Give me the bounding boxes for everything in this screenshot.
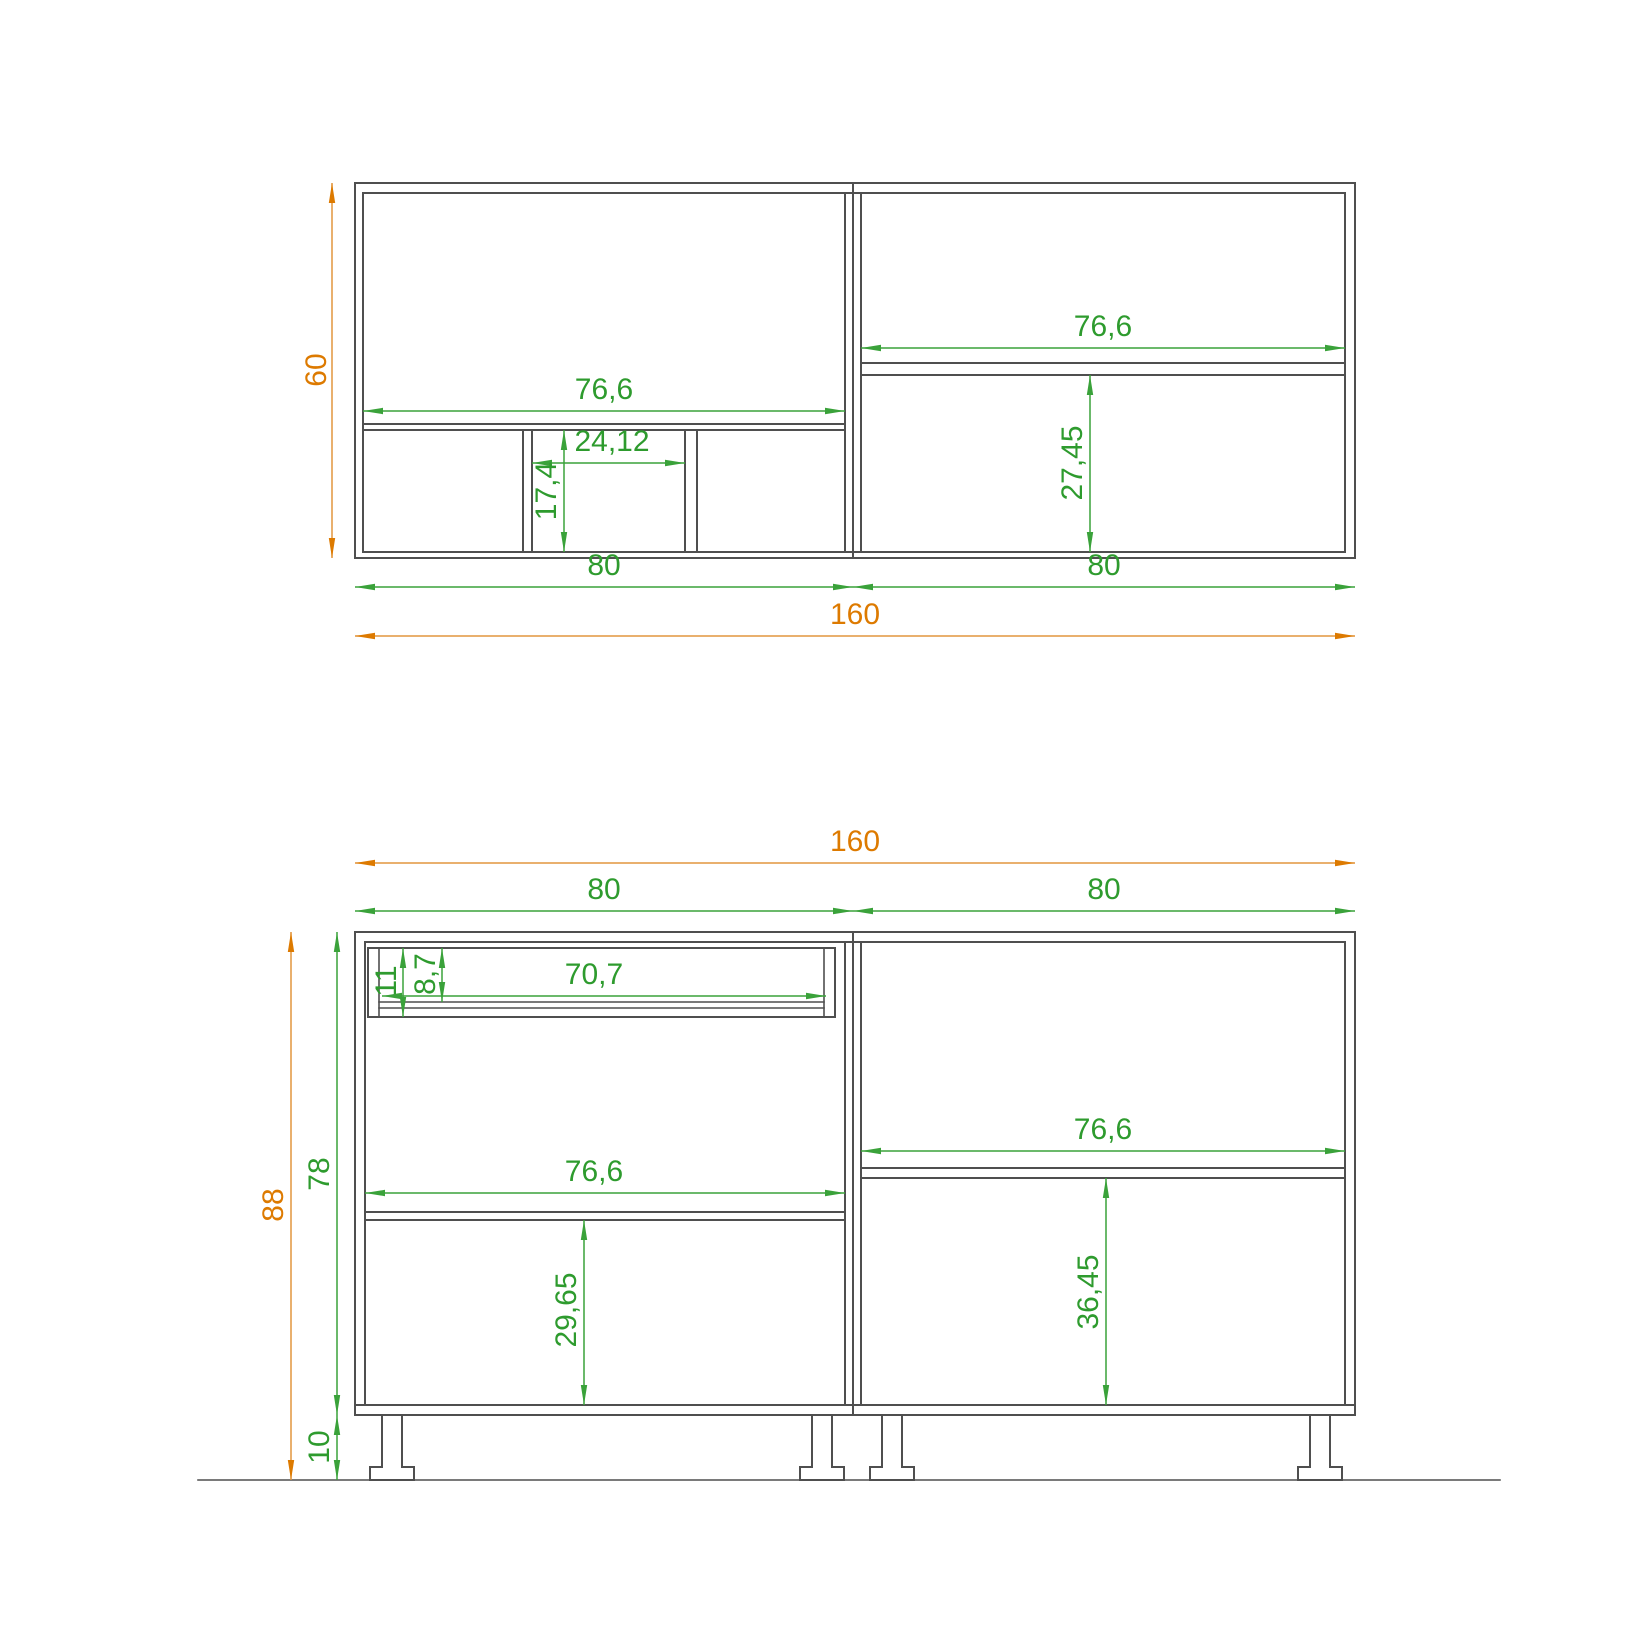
dim-front-left-interior-width: 76,6 xyxy=(365,1155,845,1193)
dim-front-leg-height: 10 xyxy=(303,1415,337,1480)
dim-front-drawer-opening-height: 8,7 xyxy=(409,948,442,1002)
front-view: 160 80 80 88 78 10 11 8,7 xyxy=(198,825,1500,1480)
front-leg-3 xyxy=(870,1415,914,1480)
dim-front-total-width: 160 xyxy=(355,825,1355,863)
dim-front-right-interior-width: 76,6 xyxy=(861,1113,1345,1151)
dim-front-right-lower-height: 36,45 xyxy=(1072,1178,1106,1405)
dim-front-leg-height-label: 10 xyxy=(303,1430,336,1463)
dim-front-left-lower-height-label: 29,65 xyxy=(550,1272,583,1347)
technical-drawing-page: 60 76,6 24,12 17,4 76,6 27,45 80 80 xyxy=(0,0,1646,1646)
dim-front-left-module-width-label: 80 xyxy=(587,873,620,906)
dim-plan-right-module-width-label: 80 xyxy=(1087,549,1120,582)
dim-front-drawer-opening-width: 70,7 xyxy=(382,958,826,996)
dim-front-drawer-front-height: 11 xyxy=(370,948,403,1017)
dim-plan-left-module-width: 80 xyxy=(355,549,853,587)
front-leg-2 xyxy=(800,1415,844,1480)
front-leg-4 xyxy=(1298,1415,1342,1480)
dim-plan-total-width-label: 160 xyxy=(830,598,880,631)
plan-carcass-structure xyxy=(355,183,1355,558)
dim-front-left-module-width: 80 xyxy=(355,873,853,911)
dim-plan-left-interior-width: 76,6 xyxy=(363,373,845,411)
dim-plan-niche-depth-label: 17,4 xyxy=(530,462,563,520)
dim-front-total-height-label: 88 xyxy=(257,1188,290,1221)
dim-plan-niche-depth: 17,4 xyxy=(530,430,564,552)
dim-plan-depth: 60 xyxy=(300,183,333,558)
front-leg-1 xyxy=(370,1415,414,1480)
dim-front-total-width-label: 160 xyxy=(830,825,880,858)
dim-front-drawer-opening-width-label: 70,7 xyxy=(565,958,623,991)
dim-front-right-module-width-label: 80 xyxy=(1087,873,1120,906)
dim-plan-total-width: 160 xyxy=(355,598,1355,636)
dim-plan-niche-width-label: 24,12 xyxy=(574,425,649,458)
dim-front-drawer-front-height-label: 11 xyxy=(370,965,403,996)
dim-plan-depth-label: 60 xyxy=(300,353,333,386)
dim-front-left-interior-width-label: 76,6 xyxy=(565,1155,623,1188)
dim-front-carcass-height: 78 xyxy=(303,932,337,1415)
cabinet-drawing-svg: 60 76,6 24,12 17,4 76,6 27,45 80 80 xyxy=(0,0,1646,1646)
dim-front-right-interior-width-label: 76,6 xyxy=(1074,1113,1132,1146)
dim-front-drawer-opening-height-label: 8,7 xyxy=(409,953,442,995)
dim-front-carcass-height-label: 78 xyxy=(303,1157,336,1190)
plan-view: 60 76,6 24,12 17,4 76,6 27,45 80 80 xyxy=(300,183,1355,636)
dim-front-right-module-width: 80 xyxy=(853,873,1355,911)
dim-front-right-lower-height-label: 36,45 xyxy=(1072,1254,1105,1329)
dim-plan-left-module-width-label: 80 xyxy=(587,549,620,582)
dim-plan-right-rear-depth-label: 27,45 xyxy=(1056,425,1089,500)
front-carcass-structure xyxy=(198,932,1500,1480)
dim-front-left-lower-height: 29,65 xyxy=(550,1220,584,1405)
dim-plan-left-interior-width-label: 76,6 xyxy=(575,373,633,406)
dim-plan-right-rear-depth: 27,45 xyxy=(1056,375,1090,552)
dim-front-total-height: 88 xyxy=(257,932,291,1480)
dim-plan-right-interior-width-label: 76,6 xyxy=(1074,310,1132,343)
dim-plan-right-interior-width: 76,6 xyxy=(861,310,1345,348)
dim-plan-right-module-width: 80 xyxy=(853,549,1355,587)
